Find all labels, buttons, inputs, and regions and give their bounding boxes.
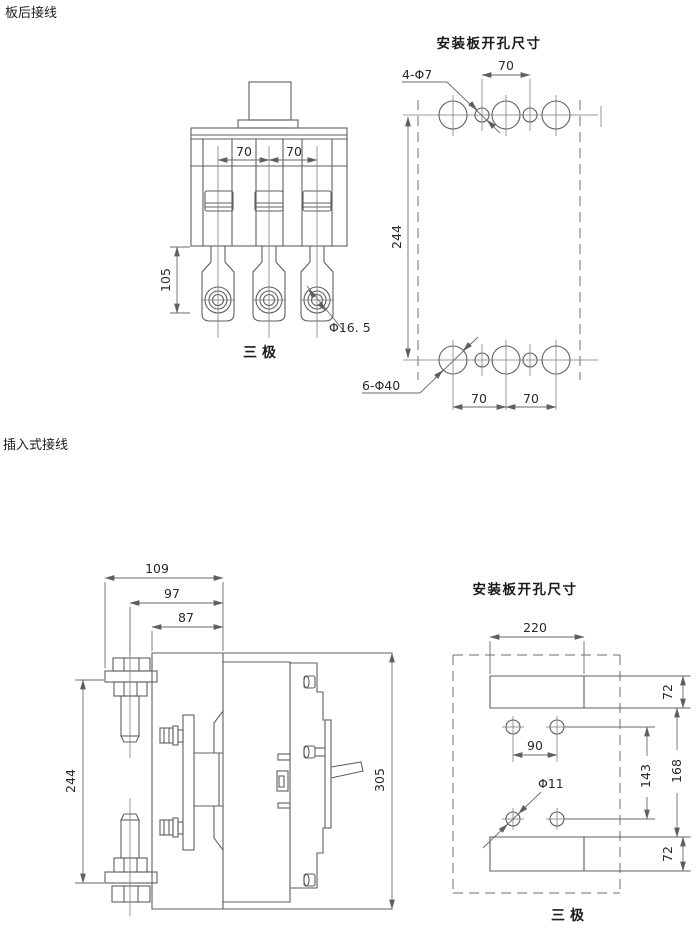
dim-pole-left-label: 70 — [236, 144, 252, 159]
dim-pole-right-label: 70 — [286, 144, 302, 159]
plugin-drill-plan: 安装板开孔尺寸 220 72 — [453, 581, 690, 923]
dim-97-label: 97 — [164, 586, 180, 601]
rear-wiring-section-label: 板后接线 — [5, 5, 57, 20]
terminal-straps — [202, 246, 333, 321]
dim-168-label: 168 — [669, 759, 684, 783]
dim-109-label: 109 — [145, 561, 169, 576]
mounting-plate-side — [183, 715, 194, 850]
mounting-holes-bottom-row — [439, 340, 570, 410]
hole-callout-11: Φ11 — [538, 776, 564, 791]
dim-305-label: 305 — [372, 768, 387, 792]
dim-220-label: 220 — [523, 620, 547, 635]
dim-72-bottom-label: 72 — [660, 846, 675, 862]
terminal-stud-top — [105, 658, 157, 742]
dim-bottom-70-left-label: 70 — [471, 391, 487, 406]
dim-top-70-label: 70 — [498, 58, 514, 73]
breaker-handle — [249, 82, 291, 120]
plug-contacts — [304, 676, 315, 886]
terminal-stud-bottom — [105, 814, 157, 902]
dim-105-label: 105 — [158, 268, 173, 292]
technical-drawing: 板后接线 插入式接线 — [0, 0, 700, 933]
pole-windows — [203, 139, 332, 246]
rear-drill-title: 安装板开孔尺寸 — [437, 35, 542, 51]
bolt-holes — [502, 716, 568, 830]
front-view-caption: 三极 — [243, 344, 281, 360]
plate-bolt-top — [160, 726, 183, 745]
plugin-wiring-section-label: 插入式接线 — [3, 437, 68, 452]
dim-bottom-70-right-label: 70 — [523, 391, 539, 406]
drawing-page: 板后接线 插入式接线 — [0, 0, 700, 933]
plate-bolt-bottom — [160, 818, 183, 837]
dim-244-side-label: 244 — [63, 769, 78, 793]
breaker-case-profile — [290, 663, 363, 888]
dim-143-label: 143 — [638, 764, 653, 788]
handle-base — [238, 120, 298, 128]
dim-87-label: 87 — [178, 610, 194, 625]
terminal-hole-callout: Φ16. 5 — [329, 320, 371, 335]
large-hole-callout: 6-Φ40 — [362, 378, 400, 393]
breaker-front-view: 70 70 105 Φ16. 5 三极 — [158, 82, 371, 360]
dim-90-label: 90 — [527, 738, 543, 753]
dim-72-top-label: 72 — [660, 684, 675, 700]
plugin-drill-title: 安装板开孔尺寸 — [473, 581, 578, 597]
rear-drill-plan: 安装板开孔尺寸 70 4-Φ7 244 — [362, 35, 601, 410]
small-hole-callout: 4-Φ7 — [402, 67, 432, 82]
plate-outline — [453, 655, 620, 893]
dim-244-label: 244 — [389, 225, 404, 249]
breaker-handle-side — [331, 762, 363, 778]
plugin-drill-caption: 三极 — [551, 907, 589, 923]
breaker-side-view: 109 97 87 244 305 — [63, 561, 392, 916]
mounting-holes-top-row — [439, 79, 570, 136]
